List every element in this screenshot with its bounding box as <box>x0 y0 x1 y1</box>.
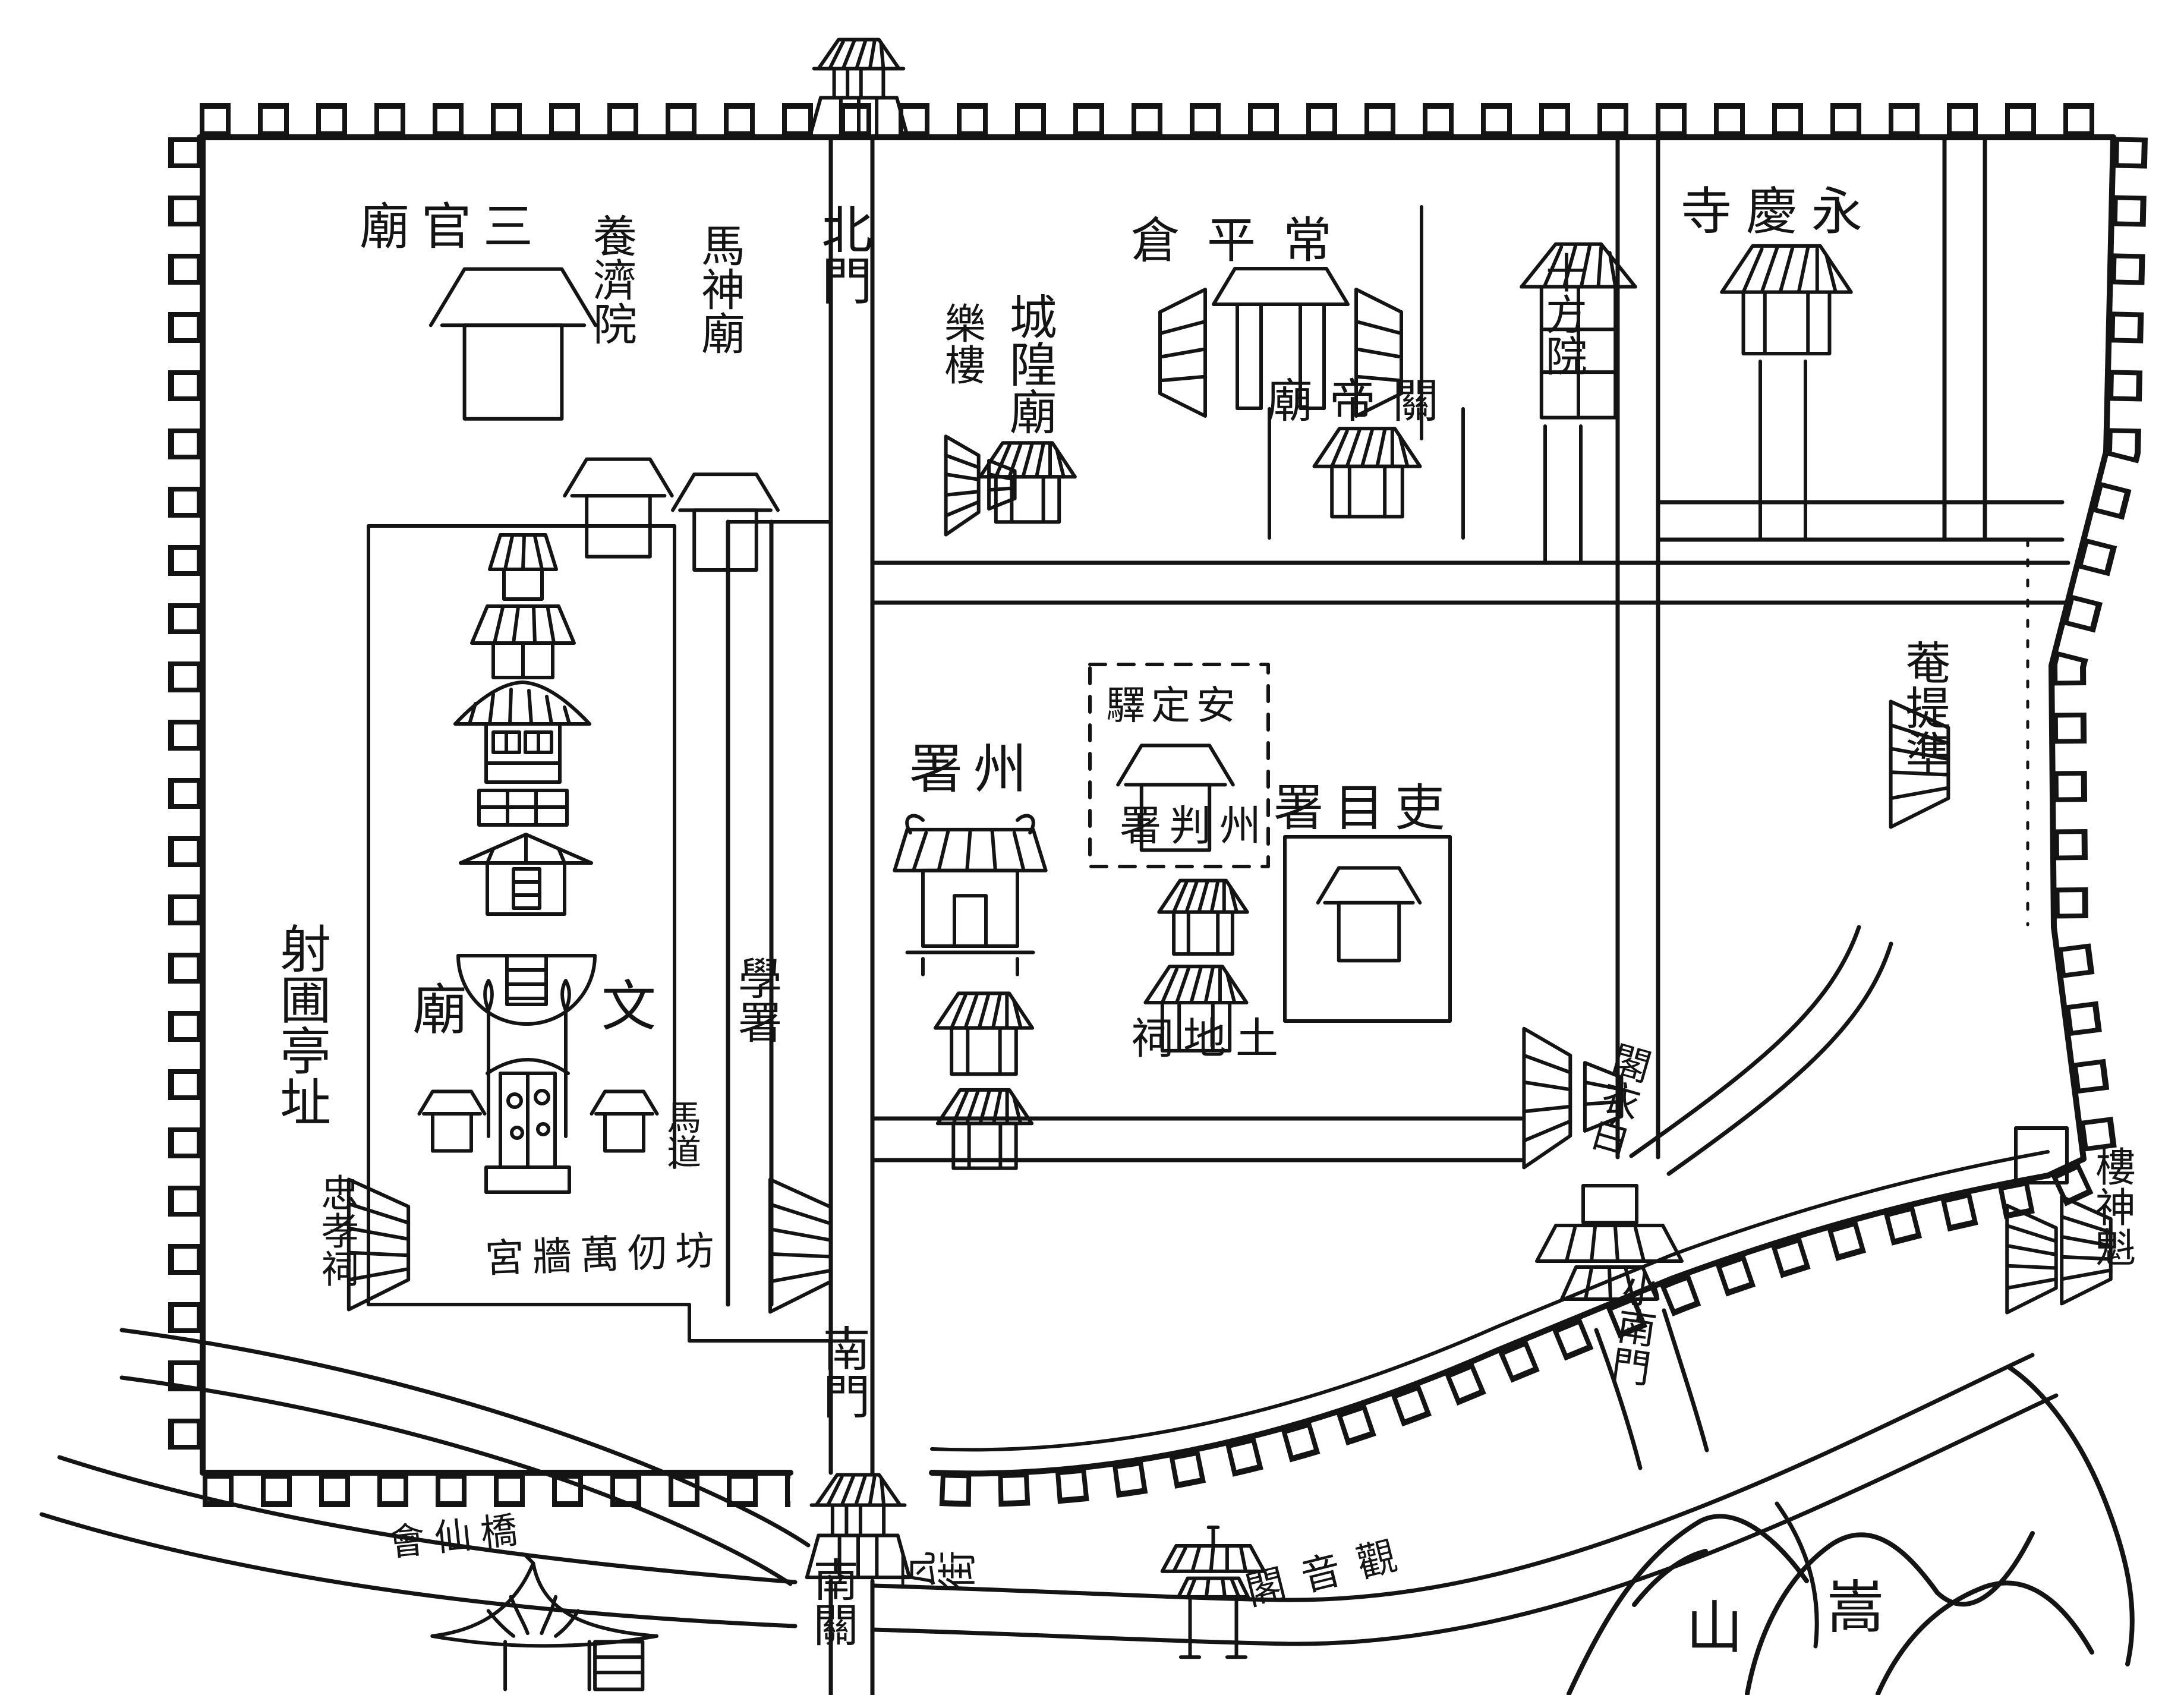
zhun-ti-an-label: 菴提準 <box>1901 639 1947 775</box>
xue-shu-label: 學署 <box>733 956 779 1044</box>
ma-shen-miao-label: 馬神廟 <box>697 223 742 355</box>
cheng-huang-miao-label: 城隍廟 <box>1004 292 1054 435</box>
tu-di-ci-label: 祠地土 <box>1131 1017 1288 1061</box>
bei-men-label: 北門 <box>815 203 868 305</box>
shan-char-label: 山 <box>1686 1599 1743 1658</box>
ma-dao-label: 馬道 <box>663 1099 699 1168</box>
guan-di-miao-label: 廟帝關 <box>1266 377 1455 426</box>
kui-shen-lou-label: 樓神魁 <box>2090 1146 2132 1267</box>
song-char-label: 嵩 <box>1827 1579 1884 1638</box>
an-ding-yi-label: 驛定安 <box>1106 686 1241 727</box>
guan-yin-ge-label: 閣音觀 <box>1242 1532 1418 1612</box>
nan-guan-label: 南關 <box>808 1557 855 1647</box>
gong-qiang-fang-label: 宮牆萬仞坊 <box>484 1231 723 1280</box>
san-guan-miao-label: 廟官三 <box>360 201 545 253</box>
wen-char-label: 文 <box>601 978 656 1035</box>
xiao-nan-men-label: 小南門 <box>1605 1265 1662 1388</box>
she-pu-ting-zhi-label: 射圃亭址 <box>273 922 326 1127</box>
miao-char-label: 廟 <box>412 982 467 1039</box>
hui-xian-qiao-label: 會仙橋 <box>386 1510 528 1563</box>
zhou-shu-label: 署州 <box>909 742 1038 798</box>
nan-men-label: 南門 <box>818 1324 867 1419</box>
label-layer: 廟官三養濟院馬神廟北門樂樓城隍廟倉平常廟帝關十方院寺慶永菴提準署州驛定安署判州署… <box>0 0 2184 1695</box>
chang-ping-cang-label: 倉平常 <box>1131 215 1359 266</box>
wa-jie-label: 瓦街 <box>897 1554 976 1595</box>
map-stage: 廟官三養濟院馬神廟北門樂樓城隍廟倉平常廟帝關十方院寺慶永菴提準署州驛定安署判州署… <box>0 0 2184 1695</box>
shi-fang-yuan-label: 十方院 <box>1542 251 1585 376</box>
zhong-xiao-ci-label: 忠孝祠 <box>317 1173 357 1287</box>
bai-yi-ge-label: 閣衣白 <box>1583 1038 1653 1159</box>
yue-lou-label: 樂樓 <box>940 302 984 385</box>
yang-ji-yuan-label: 養濟院 <box>588 213 634 345</box>
yong-qing-si-label: 寺慶永 <box>1681 185 1877 238</box>
zhou-pan-shu-label: 署判州 <box>1120 805 1269 848</box>
li-mu-shu-label: 署目吏 <box>1274 782 1455 834</box>
